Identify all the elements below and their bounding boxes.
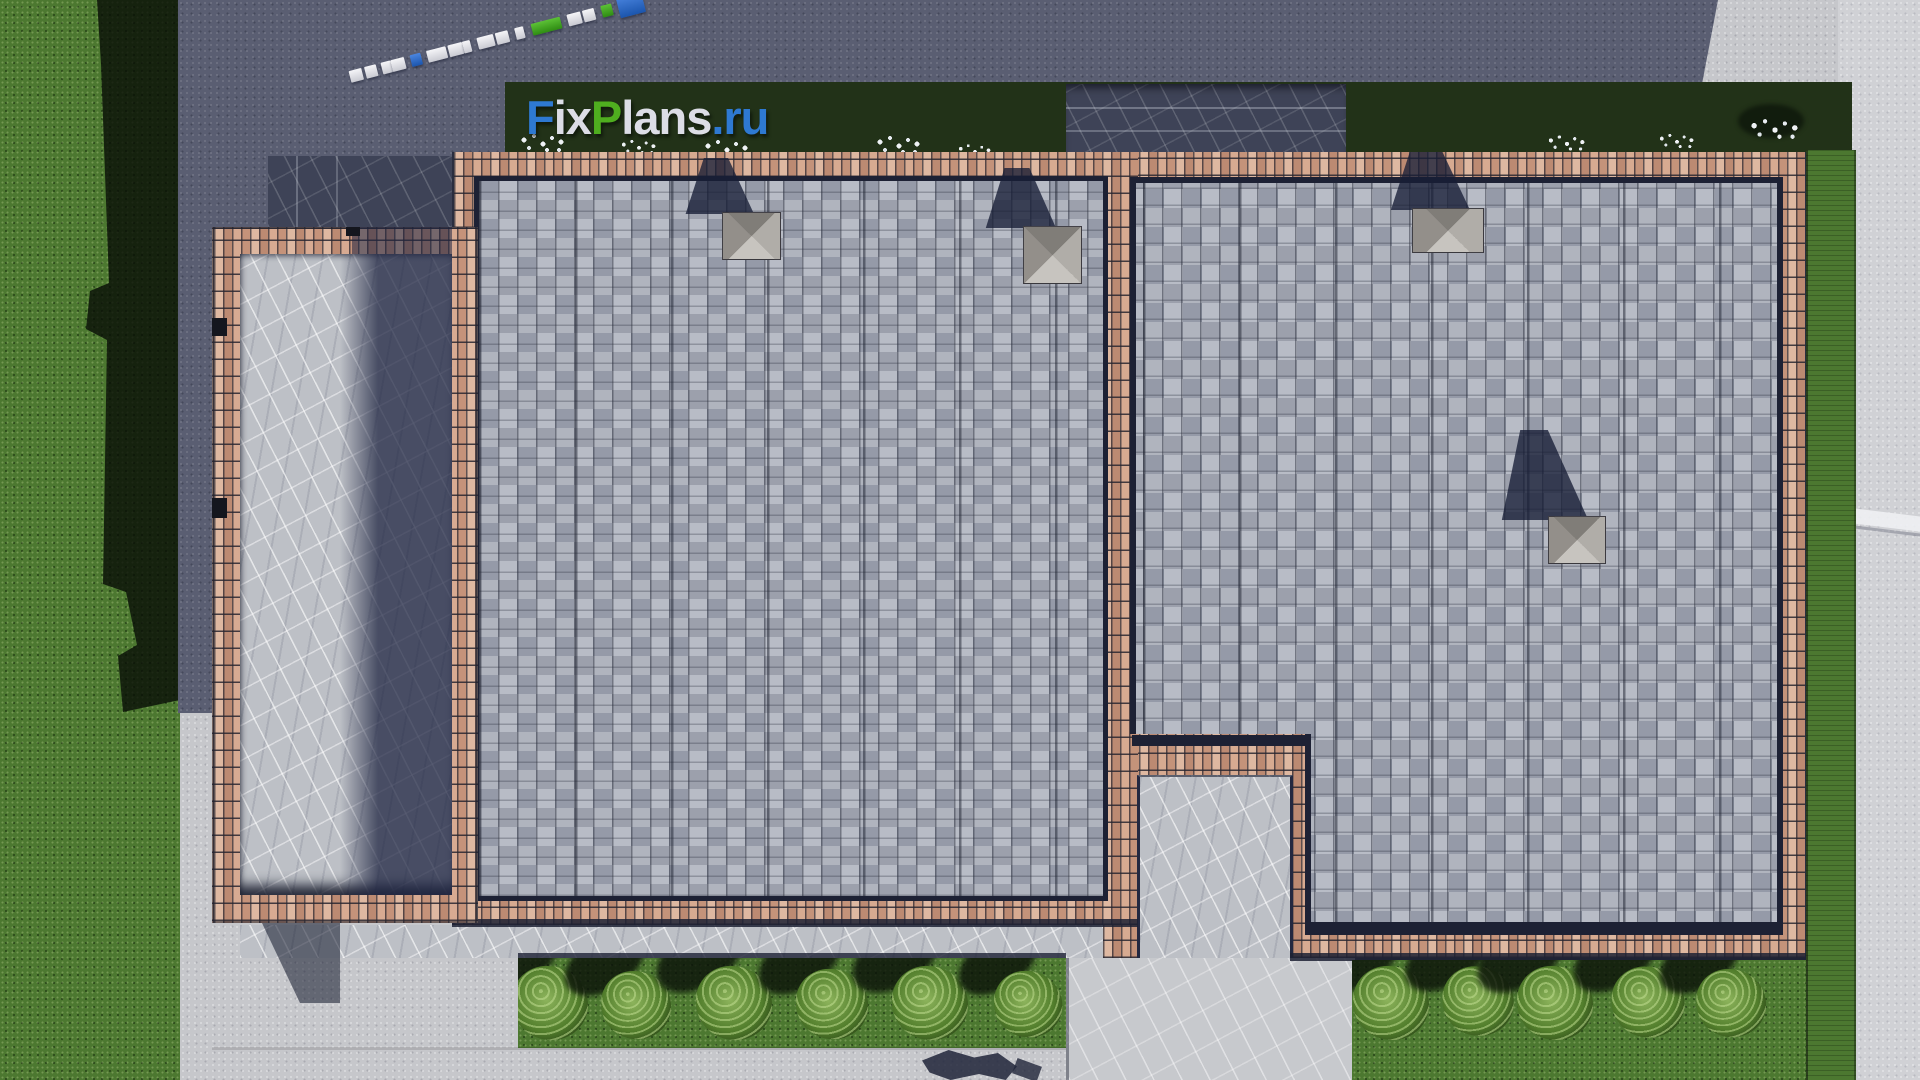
chimney — [1412, 208, 1484, 253]
logo-part-domain: .ru — [711, 91, 768, 144]
planting-bed-right — [1352, 960, 1806, 1080]
planting-bed-left — [518, 958, 1066, 1048]
patio-notch-floor — [1137, 775, 1293, 961]
terrace-wall-opening — [212, 318, 227, 336]
survey-marker-block — [426, 46, 448, 63]
hedge-flowers — [1655, 131, 1698, 152]
pavement-shadow-terrace-side — [178, 227, 212, 713]
aerial-roof-plan-render: FixPlans.ru — [0, 0, 1920, 1080]
roof-left-south-eave-line — [452, 919, 1138, 927]
step-edge — [1066, 130, 1346, 132]
walkway-central — [1066, 958, 1355, 1080]
logo-part-lans: lans — [621, 91, 711, 144]
bush — [989, 965, 1066, 1044]
chimney — [1023, 226, 1082, 284]
terrace-wall-opening — [346, 227, 360, 236]
pavement-seam — [212, 1047, 1066, 1050]
roof-left-shingles — [479, 181, 1103, 896]
chimney — [1548, 516, 1606, 564]
step-edge — [1066, 107, 1346, 109]
hedge-flowers — [1544, 132, 1590, 154]
chimney — [722, 212, 781, 260]
step-edge — [296, 156, 298, 227]
logo-part-blue-f: F — [526, 91, 554, 144]
terrace-parapet-shadow — [352, 227, 452, 254]
terrace-floor-shadow — [340, 254, 452, 895]
entry-steps-top — [1066, 84, 1346, 155]
lawn-strip-right — [1806, 150, 1856, 1080]
terrace-wall-opening — [212, 498, 227, 518]
bush — [1691, 964, 1776, 1045]
patio-notch-eave — [1132, 735, 1310, 746]
step-edge — [336, 156, 338, 227]
pavement-shadow-left-of-hedge — [178, 84, 505, 155]
survey-marker-block — [531, 17, 563, 36]
logo-part-green-p: P — [591, 91, 621, 144]
logo-part-ix: ix — [554, 91, 591, 144]
watermark-logo: FixPlans.ru — [526, 94, 768, 141]
hedge-flowers — [1745, 115, 1804, 144]
